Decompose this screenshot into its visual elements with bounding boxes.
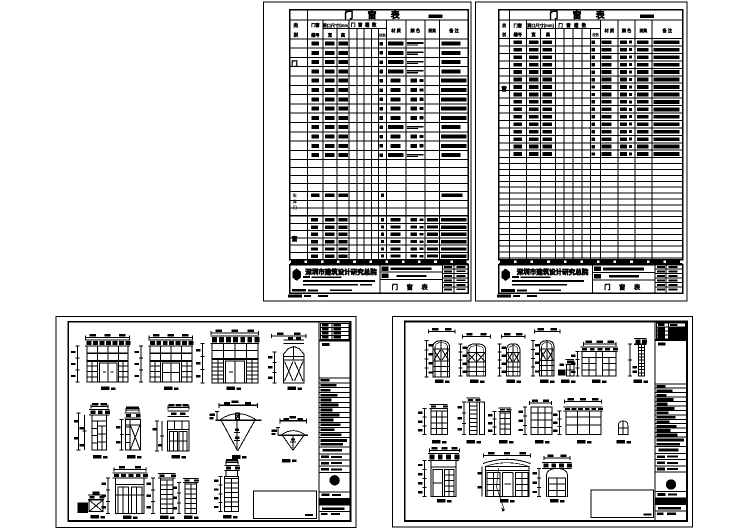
- svg-text:别: 别: [293, 32, 299, 39]
- svg-text:类: 类: [294, 22, 299, 29]
- svg-text:别: 别: [501, 32, 506, 37]
- svg-text:门: 门: [293, 204, 297, 210]
- svg-text:门 窗 表: 门 窗 表: [344, 9, 405, 20]
- svg-text:车: 车: [293, 192, 297, 198]
- svg-text:樘数: 樘数: [379, 33, 386, 38]
- svg-text:高: 高: [341, 32, 345, 39]
- svg-text:门窗樘数: 门窗樘数: [351, 22, 379, 29]
- svg-text:备 注: 备 注: [449, 27, 459, 34]
- svg-text:门: 门: [291, 60, 297, 68]
- svg-text:编号: 编号: [311, 32, 319, 39]
- svg-text:颜 色: 颜 色: [622, 27, 632, 34]
- svg-text:宽: 宽: [530, 31, 536, 38]
- svg-text:门 窗 表: 门 窗 表: [604, 284, 644, 292]
- svg-text:材 质: 材 质: [604, 27, 615, 34]
- svg-text:编号: 编号: [514, 31, 522, 38]
- svg-text:门窗樘数: 门窗樘数: [558, 22, 589, 29]
- svg-text:窗: 窗: [501, 85, 507, 93]
- svg-text:门 窗 表: 门 窗 表: [549, 9, 610, 20]
- svg-text:洞口尺寸(mm): 洞口尺寸(mm): [527, 22, 555, 29]
- svg-text:深圳市建筑设计研究总院: 深圳市建筑设计研究总院: [305, 267, 377, 276]
- svg-text:门 窗 表: 门 窗 表: [392, 283, 432, 291]
- svg-text:材 质: 材 质: [390, 27, 401, 34]
- svg-text:图集: 图集: [640, 28, 648, 33]
- svg-text:颜 色: 颜 色: [411, 27, 421, 34]
- svg-text:图集: 图集: [428, 28, 436, 33]
- svg-text:洞口尺寸(mm): 洞口尺寸(mm): [323, 22, 351, 29]
- svg-text:库: 库: [293, 198, 297, 204]
- svg-text:宽: 宽: [327, 32, 333, 39]
- svg-text:门窗: 门窗: [311, 22, 319, 29]
- svg-text:高: 高: [546, 31, 550, 38]
- svg-text:窗: 窗: [292, 235, 298, 243]
- svg-text:门窗: 门窗: [514, 22, 522, 29]
- svg-text:备 注: 备 注: [663, 27, 673, 34]
- svg-text:樘数: 樘数: [592, 32, 599, 37]
- svg-text:深圳市建筑设计研究总院: 深圳市建筑设计研究总院: [517, 267, 589, 276]
- svg-text:类: 类: [501, 23, 506, 28]
